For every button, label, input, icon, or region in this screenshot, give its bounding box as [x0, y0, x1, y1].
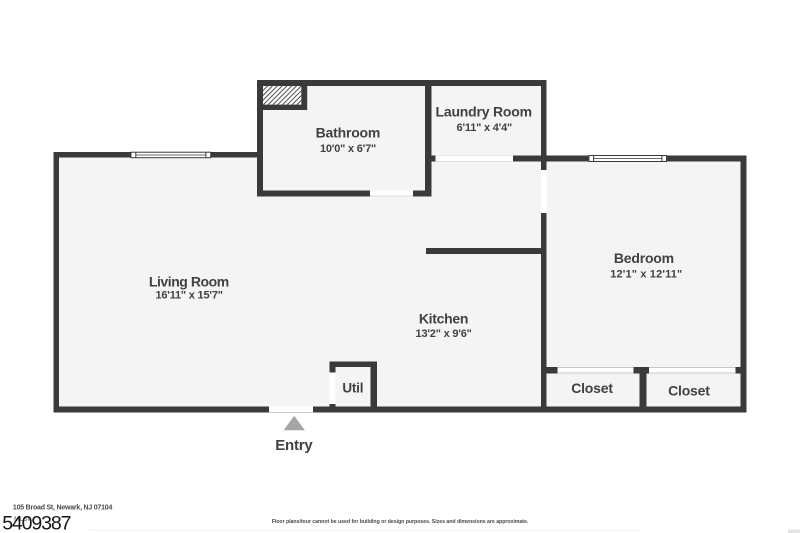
svg-text:Bathroom: Bathroom — [316, 125, 381, 141]
svg-text:Util: Util — [342, 381, 363, 396]
svg-text:Entry: Entry — [275, 437, 313, 454]
svg-text:Floor plans/tour cannot be use: Floor plans/tour cannot be used for buil… — [272, 519, 529, 525]
svg-text:5409387: 5409387 — [2, 513, 70, 533]
svg-text:16'11" x 15'7": 16'11" x 15'7" — [155, 289, 222, 301]
svg-text:105 Broad St, Newark, NJ 07104: 105 Broad St, Newark, NJ 07104 — [13, 504, 113, 511]
svg-text:Laundry Room: Laundry Room — [436, 104, 532, 120]
svg-text:6'11" x 4'4": 6'11" x 4'4" — [457, 122, 512, 134]
svg-text:Bedroom: Bedroom — [614, 250, 674, 266]
svg-text:13'2" x 9'6": 13'2" x 9'6" — [416, 328, 472, 340]
svg-text:12'1" x 12'11": 12'1" x 12'11" — [610, 269, 682, 281]
svg-text:Living Room: Living Room — [149, 273, 229, 289]
svg-text:Kitchen: Kitchen — [419, 311, 468, 327]
svg-text:10'0" x 6'7": 10'0" x 6'7" — [320, 143, 376, 155]
svg-text:Closet: Closet — [571, 380, 613, 396]
svg-text:Closet: Closet — [668, 383, 710, 399]
